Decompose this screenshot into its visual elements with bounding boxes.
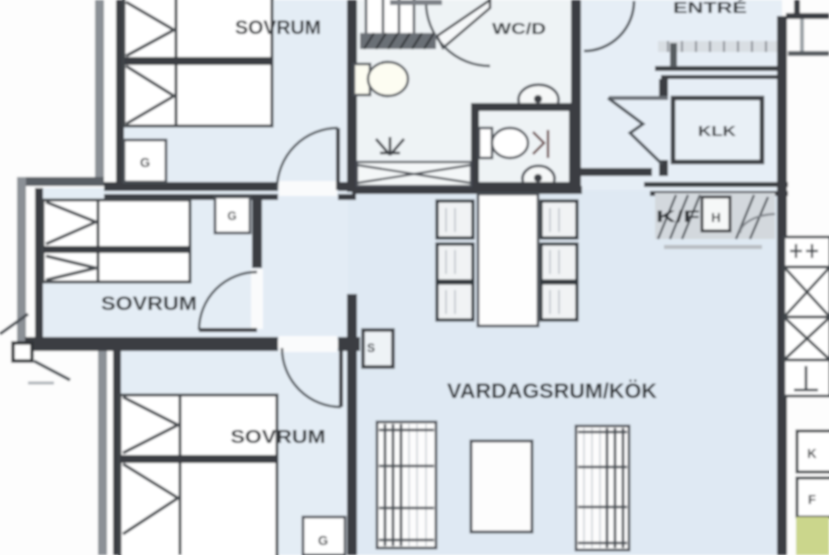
svg-text:SOVRUM: SOVRUM xyxy=(231,427,326,447)
svg-text:K/F: K/F xyxy=(656,207,700,226)
svg-text:SOVRUM: SOVRUM xyxy=(101,294,197,315)
svg-text:WC/D: WC/D xyxy=(492,21,546,38)
svg-text:F: F xyxy=(808,492,816,507)
svg-text:VARDAGSRUM/KÖK: VARDAGSRUM/KÖK xyxy=(447,380,657,403)
svg-text:ENTRÉ: ENTRÉ xyxy=(673,0,747,17)
svg-text:G: G xyxy=(227,209,236,223)
svg-text:K: K xyxy=(807,446,817,461)
svg-text:G: G xyxy=(318,533,328,548)
svg-text:S: S xyxy=(367,341,375,355)
svg-text:KLK: KLK xyxy=(698,123,736,140)
svg-text:SOVRUM: SOVRUM xyxy=(235,18,321,39)
svg-text:G: G xyxy=(140,155,150,170)
svg-text:H: H xyxy=(711,210,720,225)
